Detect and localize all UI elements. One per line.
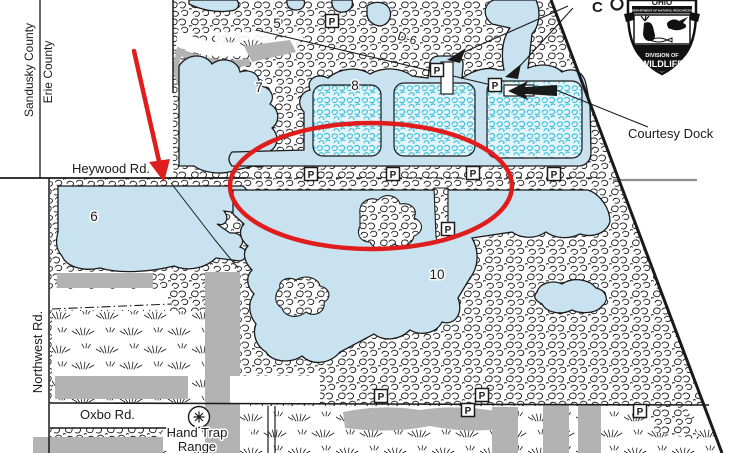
svg-text:P: P: [470, 169, 477, 180]
pond-number-label: 10: [429, 267, 444, 282]
parking-icon: P: [467, 167, 480, 180]
svg-text:P: P: [465, 406, 472, 417]
hand-trap-range-label-line2: Range: [178, 439, 216, 453]
hand-trap-burst-icon: [194, 412, 205, 423]
gray-column-2: [543, 404, 569, 453]
county-label-sandusky: Sandusky County: [22, 23, 36, 117]
courtesy-dock-label: Courtesy Dock: [628, 126, 714, 141]
svg-text:P: P: [329, 17, 336, 28]
pond-number-label: 8: [351, 78, 359, 93]
svg-text:P: P: [479, 391, 486, 402]
badge-top-text: OHIO: [652, 0, 672, 7]
heywood-road-label: Heywood Rd.: [72, 161, 150, 176]
parking-icon: P: [375, 390, 388, 403]
badge-scene-frame: [634, 15, 690, 44]
marsh-cell-2: [394, 83, 475, 156]
parking-icon: P: [548, 168, 561, 181]
gray-lane-1: [57, 273, 153, 288]
marsh-cell-1: [313, 85, 381, 156]
pond-number-label: 7: [255, 80, 263, 95]
pond-6: [57, 186, 248, 272]
parking-icon: P: [476, 389, 489, 402]
pond-top-2: [287, 0, 305, 10]
parking-icon: P: [634, 405, 647, 418]
wildlife-area-map: C OHIO DEPARTMENT OF NATURAL RESOURCES D…: [0, 0, 732, 453]
pond-number-label: 6: [90, 209, 98, 224]
map-canvas: C OHIO DEPARTMENT OF NATURAL RESOURCES D…: [0, 0, 732, 453]
gray-column-1: [492, 407, 518, 453]
svg-text:P: P: [308, 170, 315, 181]
parking-icon: P: [489, 79, 502, 92]
pond-number-label: 5: [273, 16, 281, 31]
pond-top-3: [332, 0, 353, 12]
svg-text:P: P: [445, 225, 452, 236]
clearing-central: [230, 376, 320, 403]
parking-icon: P: [442, 223, 455, 236]
svg-text:P: P: [378, 392, 385, 403]
svg-text:P: P: [390, 170, 397, 181]
hand-trap-range-label-line1: Hand Trap: [167, 425, 228, 440]
top-cutoff-label: C: [592, 0, 603, 16]
svg-text:P: P: [637, 407, 644, 418]
pond-top-4: [367, 2, 391, 26]
gray-lane-southwest: [33, 437, 163, 453]
parking-icon: P: [431, 64, 444, 77]
badge-division-line2: WILDLIFE: [641, 59, 684, 69]
northwest-road-label: Northwest Rd.: [30, 311, 45, 393]
gray-column-3: [578, 404, 601, 453]
parking-icon: P: [462, 404, 475, 417]
parking-icon: P: [387, 168, 400, 181]
gray-lane-2: [55, 376, 188, 399]
svg-text:P: P: [551, 170, 558, 181]
svg-text:P: P: [492, 81, 499, 92]
parking-icon: P: [326, 15, 339, 28]
parking-icon: P: [305, 168, 318, 181]
county-label-erie: Erie County: [41, 41, 55, 104]
badge-banner-text: DEPARTMENT OF NATURAL RESOURCES: [632, 9, 693, 13]
svg-text:P: P: [434, 66, 441, 77]
gray-bar-bottom: [343, 407, 503, 430]
oxbo-road-label: Oxbo Rd.: [80, 407, 135, 422]
